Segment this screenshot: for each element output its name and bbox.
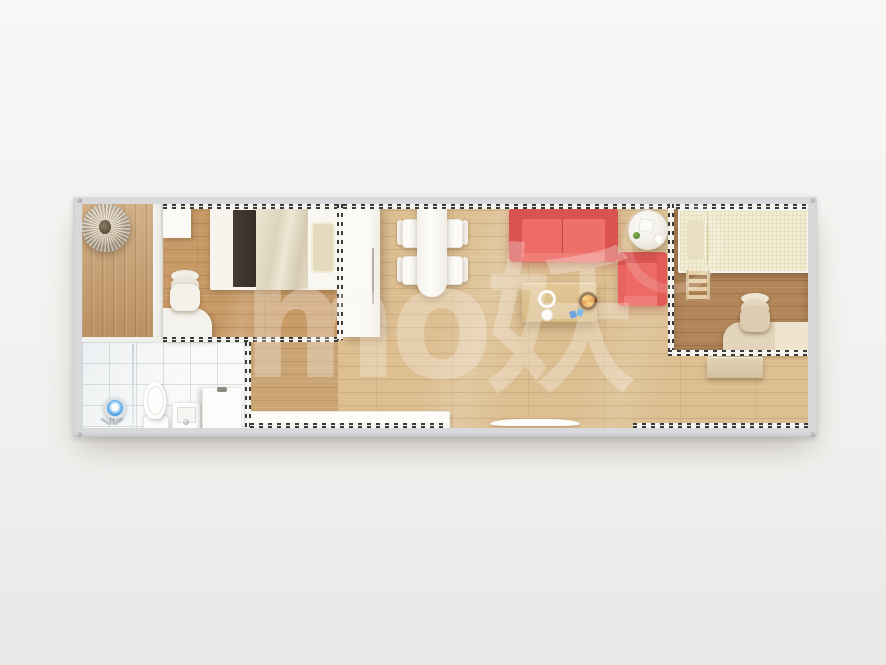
floorplan-interior: mo妖	[82, 204, 808, 428]
book	[638, 218, 655, 233]
chair-seat	[170, 284, 200, 311]
single-bed	[678, 209, 808, 273]
sofa-front-edge	[522, 253, 605, 262]
frame-screw	[810, 432, 815, 437]
wall-bottom-right	[633, 423, 808, 428]
wall-kidsroom-left	[668, 204, 674, 356]
washing-machine	[202, 387, 242, 428]
armchair-armrest	[657, 252, 667, 306]
dining-chair	[444, 256, 468, 283]
sofa-cushion	[563, 219, 605, 255]
wall-top	[163, 204, 808, 209]
toy	[570, 309, 584, 319]
porch-wall	[153, 204, 163, 337]
red-armchair	[618, 252, 667, 306]
round-side-table	[628, 210, 668, 250]
bed-pillow	[686, 219, 705, 261]
frame-screw	[810, 198, 815, 203]
cup	[653, 233, 665, 245]
sofa-cushion	[522, 219, 563, 255]
frame-screw	[77, 198, 82, 203]
plate	[538, 290, 556, 308]
wall-kidsroom-bottom	[668, 350, 808, 356]
dining-chair	[444, 219, 468, 246]
sofa-armrest	[605, 208, 618, 262]
bed-crease	[707, 212, 708, 266]
coffee-table	[522, 283, 597, 322]
toilet	[140, 382, 170, 428]
sink	[172, 402, 201, 428]
tall-storage-cabinet	[343, 205, 380, 337]
cup	[541, 309, 553, 321]
double-bed	[210, 207, 338, 290]
frame-screw	[77, 432, 82, 437]
fruit-bowl	[579, 292, 597, 310]
small-plant	[633, 232, 640, 239]
red-sofa	[509, 208, 618, 262]
bedroom-desk	[163, 308, 212, 340]
bed-ladder	[686, 270, 710, 300]
wall-bathroom-right	[245, 342, 251, 428]
kids-cabinet	[707, 357, 763, 378]
pendant-ornament	[82, 204, 130, 252]
shower-fixture	[99, 396, 125, 428]
bedroom-wardrobe	[163, 208, 191, 238]
bed-pillow	[311, 222, 335, 273]
bedroom-chair	[167, 268, 203, 312]
porch-floor	[82, 204, 153, 337]
wall-living-left	[337, 204, 343, 340]
sofa-armrest	[509, 208, 522, 262]
bed-runner	[233, 210, 256, 287]
shower-glass-divider	[132, 344, 134, 428]
dining-table	[417, 205, 447, 297]
scene: mo妖	[0, 0, 886, 665]
shower-head	[104, 397, 126, 419]
toilet-seat	[147, 386, 164, 415]
entrance-mat	[490, 419, 580, 426]
kids-chair	[737, 293, 773, 332]
armchair-seat	[626, 263, 657, 297]
container-unit: mo妖	[73, 196, 817, 437]
porch-bathroom-wall	[82, 337, 163, 342]
ladder-rungs	[688, 271, 708, 300]
wall-bottom-left	[250, 423, 448, 428]
armchair-front-edge	[624, 296, 659, 306]
bed-blanket	[256, 207, 308, 290]
chair-seat	[740, 307, 770, 332]
